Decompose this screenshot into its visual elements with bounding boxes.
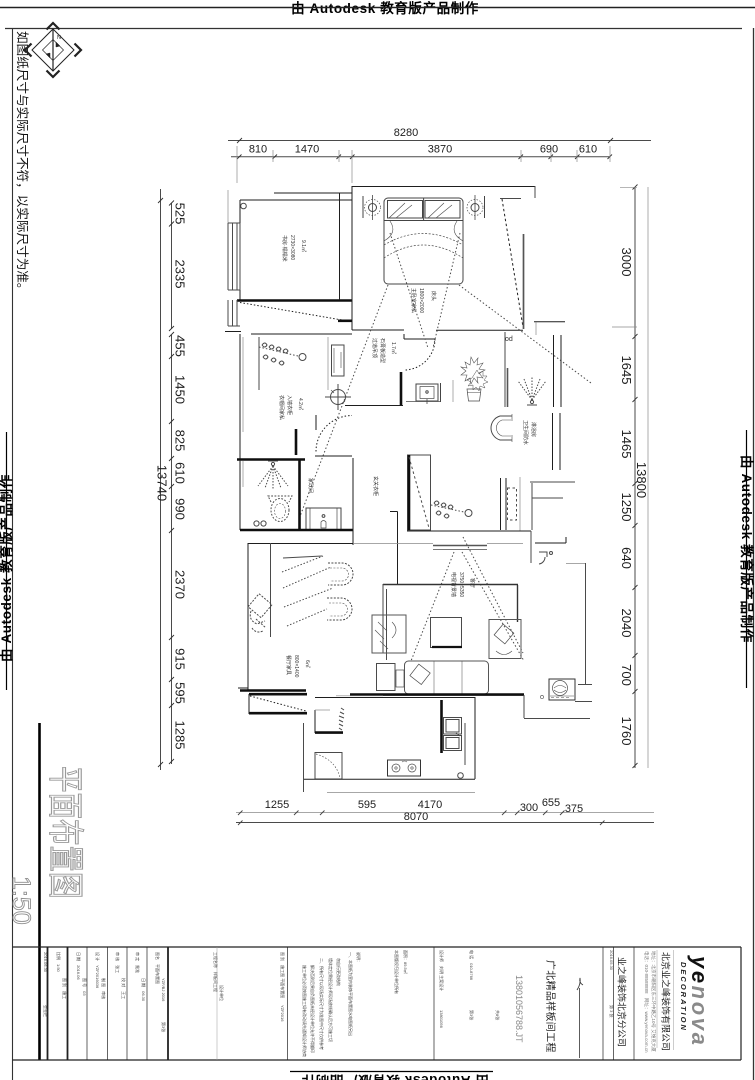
svg-text:餐厅家具: 餐厅家具 — [285, 655, 292, 675]
svg-text:审 核 张工: 审 核 张工 — [115, 952, 121, 973]
svg-text:北京业之峰装饰有限公司: 北京业之峰装饰有限公司 — [661, 952, 672, 1051]
svg-text:过道吊顶: 过道吊顶 — [371, 338, 378, 358]
svg-text:书房·榻榻米: 书房·榻榻米 — [281, 235, 288, 262]
svg-text:8070: 8070 — [404, 811, 428, 823]
svg-text:日 期 06.30: 日 期 06.30 — [141, 978, 147, 1002]
svg-text:广北精品样板间工程: 广北精品样板间工程 — [544, 960, 557, 1053]
svg-text:第 3 张: 第 3 张 — [609, 1005, 615, 1017]
svg-text:地址：北京市朝阳区东三环中路乙10号 艾维克大厦: 地址：北京市朝阳区东三环中路乙10号 艾维克大厦 — [650, 951, 657, 1052]
svg-text:2040: 2040 — [619, 609, 634, 638]
svg-text:990: 990 — [173, 498, 188, 520]
svg-text:3000: 3000 — [619, 248, 634, 277]
svg-text:设计师 刘明 主案设计: 设计师 刘明 主案设计 — [439, 950, 445, 991]
svg-text:审 定 批准: 审 定 批准 — [135, 952, 141, 973]
svg-text:石膏板造型: 石膏板造型 — [379, 338, 386, 363]
svg-text:入墙衣柜: 入墙衣柜 — [286, 395, 293, 415]
svg-text:工程名称 样板间工程: 工程名称 样板间工程 — [213, 952, 219, 992]
svg-text:od: od — [505, 336, 513, 343]
svg-text:610: 610 — [173, 462, 188, 484]
svg-text:300: 300 — [520, 802, 538, 814]
svg-text:595: 595 — [173, 682, 188, 704]
svg-text:图 别 施工图 平面布置图: 图 别 施工图 平面布置图 — [280, 952, 286, 998]
svg-text:2016.05.30: 2016.05.30 — [609, 950, 614, 971]
svg-text:915: 915 — [173, 648, 188, 670]
svg-text:玄关衣柜: 玄关衣柜 — [372, 476, 379, 496]
svg-text:13800: 13800 — [634, 462, 649, 498]
svg-text:6㎡: 6㎡ — [304, 660, 311, 668]
svg-text:客厅: 客厅 — [469, 578, 476, 588]
svg-text:二、所有尺寸以现场实际尺寸为准图中尺寸仅供参考: 二、所有尺寸以现场实际尺寸为准图中尺寸仅供参考 — [319, 958, 325, 1050]
svg-text:1470: 1470 — [295, 144, 319, 156]
svg-text:YZF2016: YZF2016 — [280, 1005, 285, 1022]
svg-text:墙体定位需经设计师现场放线确认后方可施工切: 墙体定位需经设计师现场放线确认后方可施工切 — [328, 958, 334, 1042]
svg-text:图名 平面布置图: 图名 平面布置图 — [155, 952, 161, 984]
svg-text:卫生间防水: 卫生间防水 — [522, 420, 529, 445]
svg-text:共8张: 共8张 — [495, 1010, 501, 1020]
svg-text:会签栏: 会签栏 — [43, 1005, 49, 1017]
svg-text:比例 1:50: 比例 1:50 — [56, 952, 62, 973]
svg-text:电 话 010-8766: 电 话 010-8766 — [469, 950, 475, 981]
svg-text:勿自行更改结构: 勿自行更改结构 — [336, 958, 342, 986]
svg-text:1:50: 1:50 — [7, 876, 35, 925]
svg-text:3870: 3870 — [428, 144, 452, 156]
svg-text:700: 700 — [619, 664, 634, 686]
svg-text:2370: 2370 — [173, 570, 188, 599]
svg-text:810: 810 — [249, 144, 267, 156]
svg-text:设 计 YZF2016036: 设 计 YZF2016036 — [95, 952, 101, 989]
svg-text:13801056: 13801056 — [439, 1010, 444, 1029]
svg-text:业之峰装饰北京分公司: 业之峰装饰北京分公司 — [617, 957, 628, 1047]
svg-text:日 期 2016.06: 日 期 2016.06 — [76, 952, 82, 980]
svg-text:图 号 03: 图 号 03 — [82, 978, 88, 996]
svg-text:595: 595 — [358, 799, 376, 811]
svg-text:13740: 13740 — [155, 465, 170, 501]
svg-text:主卧室家私: 主卧室家私 — [410, 288, 417, 313]
svg-text:YZF/BJ 2016: YZF/BJ 2016 — [161, 978, 166, 1002]
svg-text:DECORATION: DECORATION — [679, 962, 688, 1032]
svg-text:N: N — [57, 35, 61, 41]
svg-text:800×1400: 800×1400 — [293, 655, 299, 678]
svg-text:9.1㎡: 9.1㎡ — [300, 240, 307, 252]
svg-text:1645: 1645 — [619, 356, 634, 385]
svg-text:如图纸尺寸与实际尺寸不符，以实际尺寸为准。: 如图纸尺寸与实际尺寸不符，以实际尺寸为准。 — [15, 31, 30, 295]
svg-text:家政间: 家政间 — [307, 478, 314, 493]
svg-text:本图版权归设计单位所有: 本图版权归设计单位所有 — [394, 950, 400, 994]
svg-text:610: 610 — [579, 144, 597, 156]
svg-text:525: 525 — [173, 203, 188, 225]
svg-text:床头: 床头 — [430, 291, 437, 301]
svg-text:655: 655 — [542, 797, 560, 809]
svg-text:2016.06.30: 2016.06.30 — [43, 952, 48, 973]
svg-text:解决否则后果自负图纸未经设计单位允许不得翻印: 解决否则后果自负图纸未经设计单位允许不得翻印 — [310, 965, 316, 1053]
svg-text:375: 375 — [565, 803, 583, 815]
svg-text:1450: 1450 — [173, 375, 188, 404]
svg-text:校 对 王工: 校 对 王工 — [121, 978, 127, 999]
svg-text:淋浴房: 淋浴房 — [530, 422, 537, 437]
svg-text:1250: 1250 — [619, 493, 634, 522]
svg-text:1465: 1465 — [619, 430, 634, 459]
svg-text:平面布置图: 平面布置图 — [45, 766, 86, 898]
svg-text:4170: 4170 — [418, 799, 442, 811]
svg-text:13801056788.JT: 13801056788.JT — [514, 975, 524, 1043]
svg-text:1255: 1255 — [265, 799, 289, 811]
svg-text:一、本图纸为室内装饰平面布置图水电图纸另出: 一、本图纸为室内装饰平面布置图水电图纸另出 — [348, 952, 354, 1036]
svg-text:1285: 1285 — [173, 721, 188, 750]
svg-text:制 图 审核: 制 图 审核 — [101, 978, 107, 999]
svg-text:设计单位: 设计单位 — [219, 985, 225, 1001]
svg-text:690: 690 — [540, 144, 558, 156]
svg-text:1.7㎡: 1.7㎡ — [390, 342, 397, 354]
svg-text:455: 455 — [173, 335, 188, 357]
svg-text:640: 640 — [619, 547, 634, 569]
svg-text:衣帽间家私: 衣帽间家私 — [278, 395, 285, 420]
svg-text:施工单位必须按图施工如有改动请先通知设计师协商: 施工单位必须按图施工如有改动请先通知设计师协商 — [302, 965, 308, 1057]
svg-text:电话：010-88588888 网址：www.yenova.: 电话：010-88588888 网址：www.yenova.com.cn — [643, 951, 650, 1053]
svg-text:1760: 1760 — [619, 717, 634, 746]
svg-text:第3张: 第3张 — [469, 1010, 475, 1020]
svg-text:4.2㎡: 4.2㎡ — [297, 398, 304, 410]
svg-text:第3张: 第3张 — [161, 1022, 167, 1032]
svg-text:2730×3080: 2730×3080 — [289, 235, 295, 260]
svg-text:由 Autodesk 教育版产品制作: 由 Autodesk 教育版产品制作 — [301, 1073, 489, 1080]
svg-text:图 别 施工: 图 别 施工 — [62, 978, 68, 999]
svg-text:yenova: yenova — [687, 955, 712, 1047]
svg-text:说明：: 说明： — [356, 952, 362, 964]
svg-text:1800×2000: 1800×2000 — [418, 288, 424, 313]
svg-text:825: 825 — [173, 430, 188, 452]
svg-text:2335: 2335 — [173, 260, 188, 289]
svg-text:面积：89.5㎡: 面积：89.5㎡ — [403, 950, 409, 974]
svg-text:8280: 8280 — [394, 127, 418, 139]
